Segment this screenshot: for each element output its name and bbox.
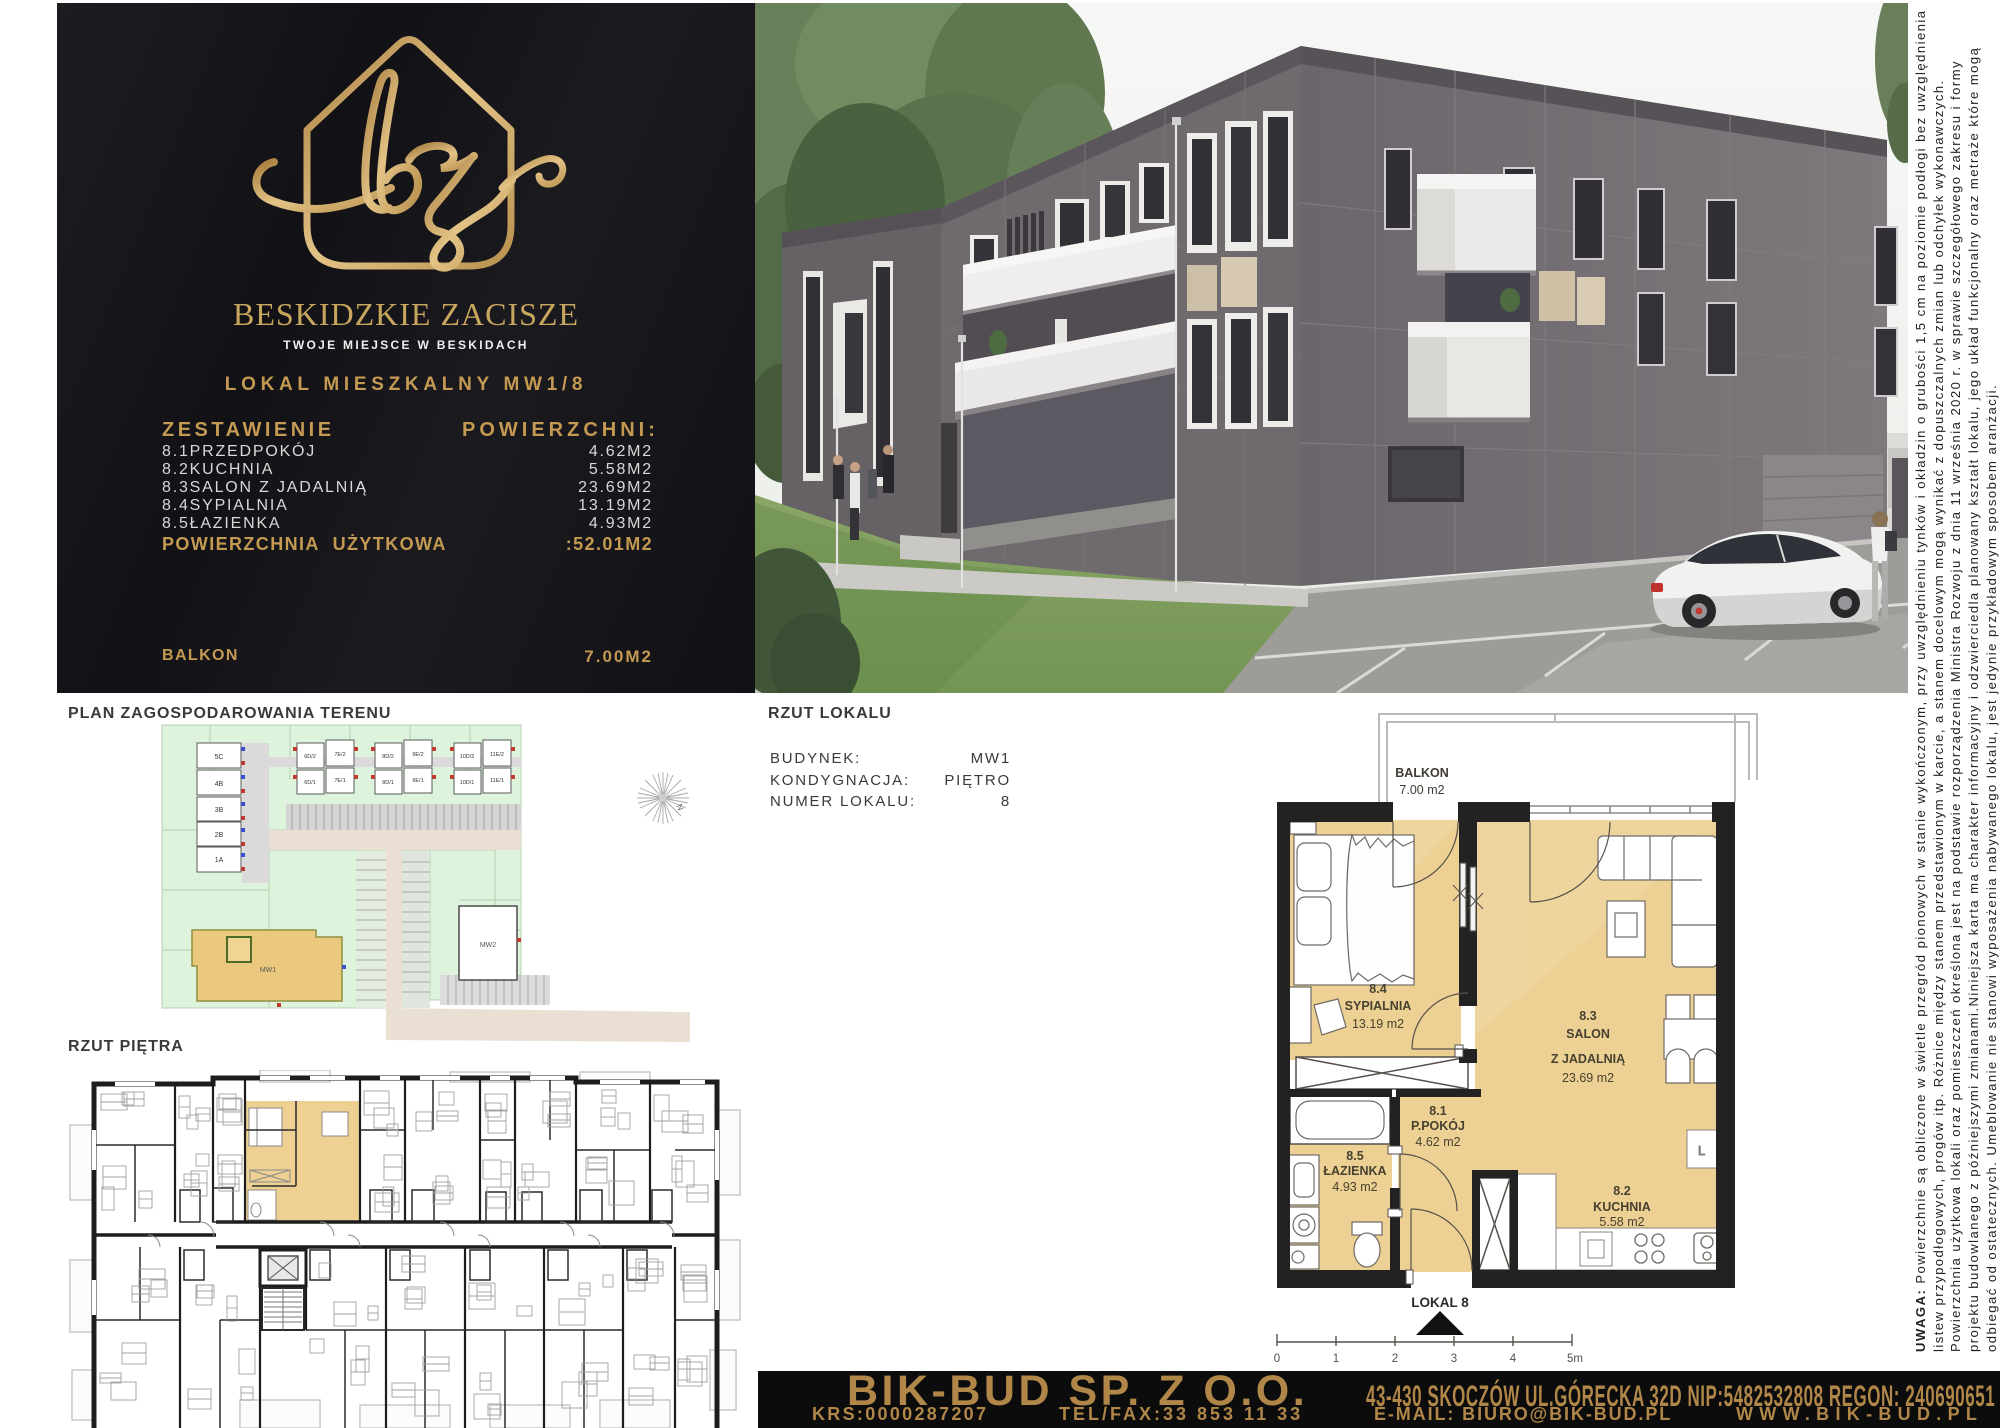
svg-text:8D/1: 8D/1	[382, 780, 394, 786]
svg-text:2: 2	[1392, 1353, 1398, 1365]
svg-text:6D/1: 6D/1	[304, 780, 316, 786]
svg-text:SALON: SALON	[1566, 1027, 1610, 1041]
svg-text:8.2: 8.2	[1613, 1184, 1630, 1198]
svg-text:9E/2: 9E/2	[412, 752, 423, 758]
svg-text:1A: 1A	[215, 857, 224, 864]
svg-text:4: 4	[1510, 1353, 1517, 1365]
svg-text:5.58 m2: 5.58 m2	[1599, 1215, 1644, 1229]
svg-text:BALKON: BALKON	[1395, 766, 1448, 780]
svg-text:6D/2: 6D/2	[304, 754, 316, 760]
svg-text:10D/1: 10D/1	[460, 780, 475, 786]
svg-text:4B: 4B	[215, 781, 224, 788]
svg-text:10D/2: 10D/2	[460, 754, 475, 760]
svg-text:ŁAZIENKA: ŁAZIENKA	[1323, 1164, 1386, 1178]
svg-text:LOKAL 8: LOKAL 8	[1411, 1295, 1469, 1310]
svg-text:7.00 m2: 7.00 m2	[1399, 783, 1444, 797]
svg-text:2B: 2B	[215, 832, 224, 839]
svg-text:7E/1: 7E/1	[334, 778, 345, 784]
svg-text:5C: 5C	[215, 754, 224, 761]
svg-text:Z JADALNIĄ: Z JADALNIĄ	[1551, 1052, 1625, 1066]
svg-text:P.POKÓJ: P.POKÓJ	[1411, 1118, 1465, 1133]
svg-text:8.3: 8.3	[1579, 1009, 1596, 1023]
svg-text:MW2: MW2	[480, 942, 496, 949]
svg-text:SYPIALNIA: SYPIALNIA	[1345, 999, 1412, 1013]
svg-text:3B: 3B	[215, 807, 224, 814]
svg-text:L: L	[1698, 1143, 1705, 1158]
svg-text:5m: 5m	[1567, 1353, 1583, 1365]
svg-text:0: 0	[1274, 1353, 1280, 1365]
svg-text:KUCHNIA: KUCHNIA	[1593, 1200, 1651, 1214]
svg-text:1: 1	[1333, 1353, 1339, 1365]
svg-text:4.62 m2: 4.62 m2	[1415, 1135, 1460, 1149]
svg-text:9E/1: 9E/1	[412, 778, 423, 784]
svg-text:3: 3	[1451, 1353, 1457, 1365]
svg-text:8D/2: 8D/2	[382, 754, 394, 760]
svg-text:11E/1: 11E/1	[490, 778, 504, 784]
svg-text:4.93 m2: 4.93 m2	[1332, 1180, 1377, 1194]
svg-text:23.69 m2: 23.69 m2	[1562, 1071, 1614, 1085]
svg-text:8.4: 8.4	[1369, 982, 1386, 996]
svg-text:7E/2: 7E/2	[334, 752, 345, 758]
svg-text:MW1: MW1	[260, 967, 276, 974]
svg-text:8.1: 8.1	[1429, 1104, 1446, 1118]
svg-text:8.5: 8.5	[1346, 1149, 1363, 1163]
svg-text:13.19 m2: 13.19 m2	[1352, 1017, 1404, 1031]
svg-text:11E/2: 11E/2	[490, 752, 504, 758]
